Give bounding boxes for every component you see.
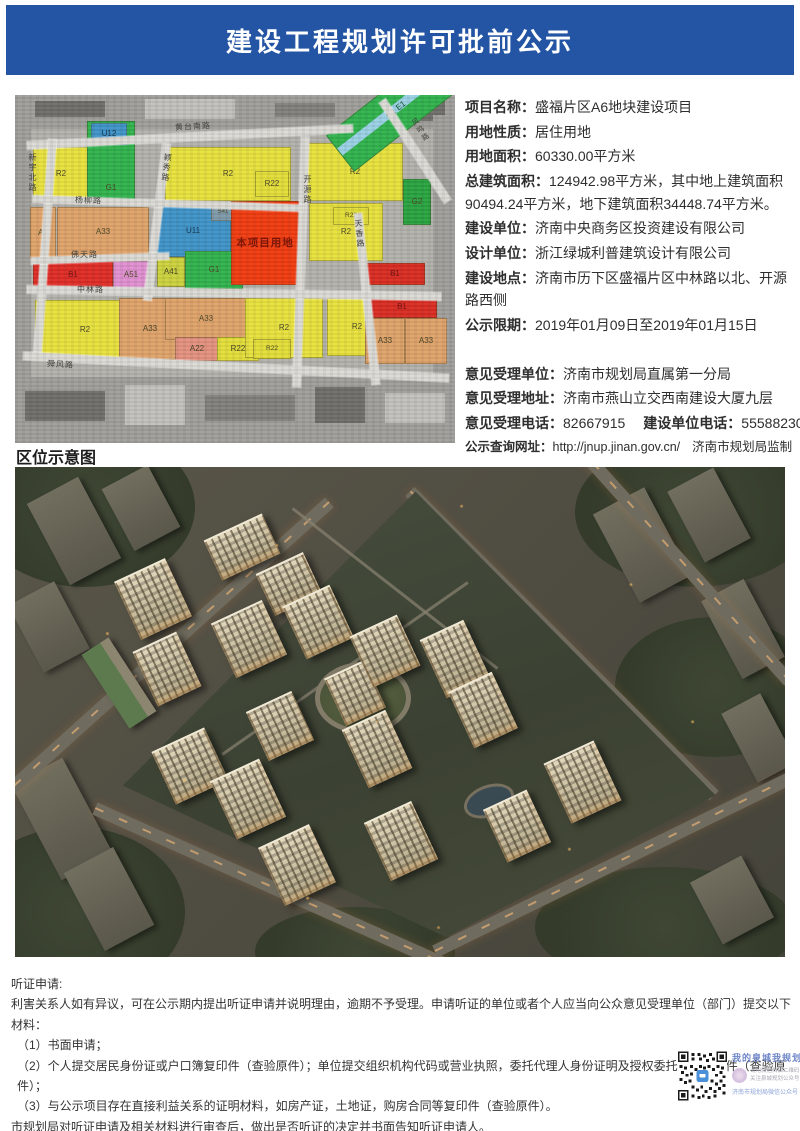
info-row: 建设单位：济南中央商务区投资建设有限公司 bbox=[465, 217, 795, 240]
notice-paragraph: （2）个人提交居民身份证或户口簿复印件（查验原件）；单位提交组织机构代码或营业执… bbox=[11, 1056, 791, 1097]
page-title: 建设工程规划许可批前公示 bbox=[226, 22, 574, 59]
info-row: 公示查询网址：http://jnup.jinan.gov.cn/济南市规划局监制 bbox=[465, 437, 795, 457]
map-parcel: R22 bbox=[255, 171, 289, 197]
project-rendering bbox=[15, 467, 785, 957]
qr-tip: 请用微信扫描二维码 bbox=[750, 1067, 800, 1075]
notice-paragraph: （1）书面申请； bbox=[11, 1035, 791, 1055]
context-building bbox=[15, 581, 90, 673]
info-row: 意见受理单位：济南市规划局直属第一分局 bbox=[465, 363, 795, 386]
info-row: 意见受理地址：济南市燕山立交西南建设大厦九层 bbox=[465, 387, 795, 410]
map-parcel: G2 bbox=[403, 179, 431, 225]
planning-bureau-badge-icon bbox=[732, 1068, 747, 1083]
qr-code bbox=[678, 1051, 727, 1101]
road-label: 开源路 bbox=[302, 175, 313, 205]
map-parcel: A33 bbox=[165, 298, 247, 340]
map-parcel: B1 bbox=[365, 263, 425, 285]
road-label: 佛天路 bbox=[71, 249, 98, 260]
info-row: 公示限期：2019年01月09日至2019年01月15日 bbox=[465, 314, 795, 337]
map-parcel: A41 bbox=[157, 257, 185, 287]
info-row: 用地面积：60330.00平方米 bbox=[465, 145, 795, 168]
map-parcel: R2 bbox=[33, 147, 89, 201]
contact-block: 意见受理单位：济南市规划局直属第一分局 意见受理地址：济南市燕山立交西南建设大厦… bbox=[465, 363, 795, 457]
planning-notice-page: 建设工程规划许可批前公示 R2 G1 U12 R2 R22 R2 G1 E1 G… bbox=[0, 0, 800, 1131]
hearing-notice: 听证申请: 利害关系人如有异议，可在公示期内提出听证申请并说明理由，逾期不予受理… bbox=[11, 974, 791, 1131]
map-parcel: A33 bbox=[405, 318, 447, 364]
info-row: 用地性质：居住用地 bbox=[465, 121, 795, 144]
notice-paragraph: 利害关系人如有异议，可在公示期内提出听证申请并说明理由，逾期不予受理。申请听证的… bbox=[11, 994, 791, 1035]
info-row: 设计单位：浙江绿城利普建筑设计有限公司 bbox=[465, 242, 795, 265]
hearing-title: 听证申请: bbox=[11, 974, 791, 994]
info-row: 总建筑面积：124942.98平方米，其中地上建筑面积90494.24平方米，地… bbox=[465, 170, 795, 215]
map-parcel: A51 bbox=[113, 261, 149, 289]
road-label: 中林路 bbox=[77, 284, 104, 295]
info-row: 建设地点：济南市历下区盛福片区中林路以北、开源路西侧 bbox=[465, 267, 795, 312]
road-label: 黄台南路 bbox=[175, 120, 212, 133]
info-row: 项目名称：盛福片区A6地块建设项目 bbox=[465, 96, 795, 119]
road-label: 杨柳路 bbox=[75, 195, 102, 207]
road-label: 新宇北路 bbox=[27, 153, 38, 193]
zoning-map: R2 G1 U12 R2 R22 R2 G1 E1 G2 A2 A33 U11 … bbox=[15, 95, 455, 443]
qr-tip: 关注泉城规划公众号 bbox=[750, 1075, 800, 1083]
qr-caption-column: 我的泉城我规划 请用微信扫描二维码 关注泉城规划公众号 济南市规划局微信公众号 bbox=[732, 1051, 794, 1101]
wechat-qr-block: 我的泉城我规划 请用微信扫描二维码 关注泉城规划公众号 济南市规划局微信公众号 bbox=[678, 1051, 794, 1101]
project-info-panel: 项目名称：盛福片区A6地块建设项目 用地性质：居住用地 用地面积：60330.0… bbox=[465, 96, 795, 459]
qr-account-name: 济南市规划局微信公众号 bbox=[732, 1087, 794, 1096]
notice-paragraph: 市规划局对听证申请及相关材料进行审查后，做出是否听证的决定并书面告知听证申请人。 bbox=[11, 1117, 791, 1131]
info-row: 意见受理电话：82667915建设单位电话：55588230 bbox=[465, 412, 795, 435]
notice-paragraph: （3）与公示项目存在直接利益关系的证明材料，如房产证，土地证，购房合同等复印件（… bbox=[11, 1096, 791, 1116]
map-caption: 区位示意图 bbox=[16, 444, 96, 468]
road-label: 舜风路 bbox=[47, 358, 75, 370]
map-parcel: R22 bbox=[253, 339, 291, 359]
publicity-url[interactable]: http://jnup.jinan.gov.cn/ bbox=[553, 440, 681, 454]
qr-slogan: 我的泉城我规划 bbox=[732, 1051, 794, 1064]
aerial-band-bottom bbox=[15, 377, 455, 443]
project-parcel: 本项目用地 bbox=[231, 201, 299, 285]
header-banner: 建设工程规划许可批前公示 bbox=[6, 5, 794, 75]
map-parcel: A22 bbox=[175, 337, 219, 361]
